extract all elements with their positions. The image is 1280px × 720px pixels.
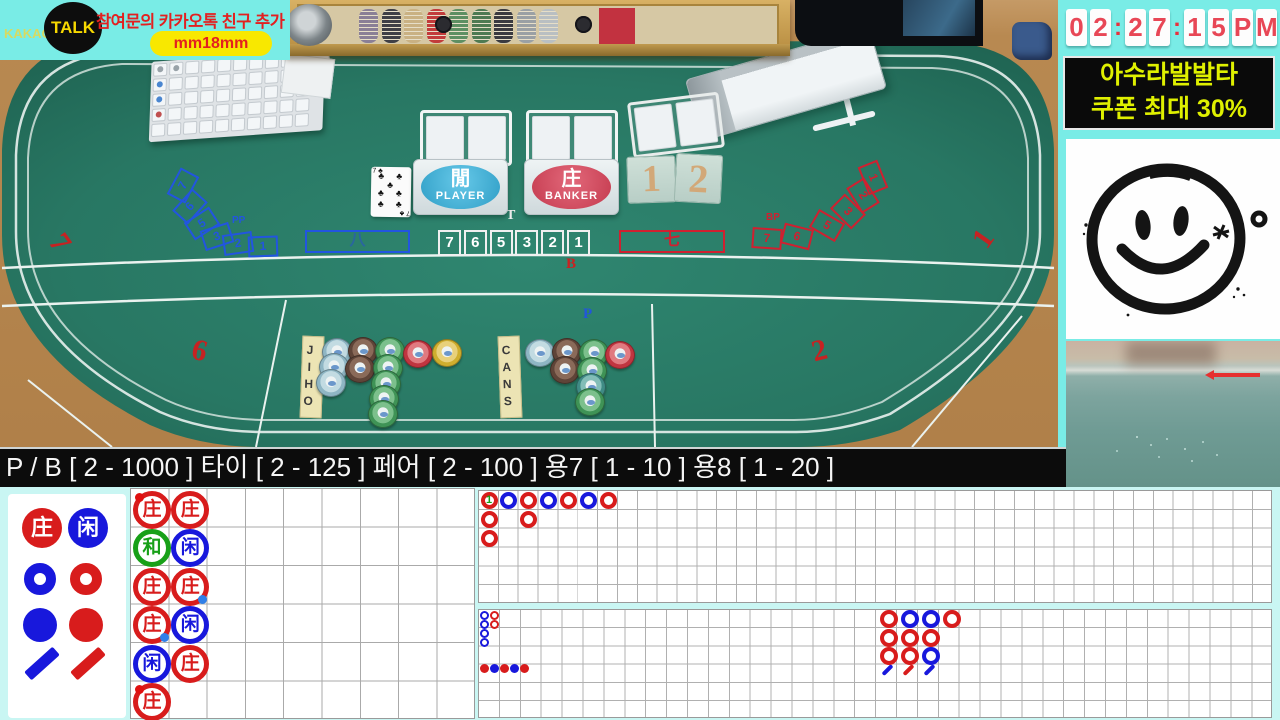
video-thumb-blur [1126,341,1216,365]
big-road-ring [560,492,577,509]
three-road-ring [943,610,961,628]
keyboard-key [200,74,214,88]
big-road-ring [540,492,557,509]
keyboard-key [169,77,183,91]
chip-logo [380,412,388,417]
key-logo [157,81,163,87]
clock-digit: 2 [1090,9,1111,46]
smiley-left-eye [1134,209,1152,240]
bead-char: 庄 [181,499,200,520]
big-eye-ring [480,629,489,638]
keyboard-key [167,107,181,121]
keyboard-key [264,85,278,99]
smiley-panel [1066,139,1280,339]
small-road-dot [510,664,519,673]
bead-road-cell: 闲 [171,606,209,644]
big-road-ring [520,511,537,528]
region-label: P [583,306,592,323]
smiley-sparkle [1213,225,1229,239]
keyboard-key [217,58,231,72]
card-slot [468,116,506,160]
keyboard-key [184,91,198,105]
keyboard-key [279,99,293,113]
keyboard-key [201,59,215,73]
clock-digit: 0 [1066,9,1087,46]
banker-label: BANKER [532,190,611,202]
player-card-holder [420,110,512,166]
banker-arc-label: BP [766,212,780,223]
metal-ashtray [286,4,332,46]
keyboard-key [199,105,213,119]
three-road-ring [922,647,940,665]
smiley-right-eye [1172,205,1191,237]
big-eye-ring [480,620,489,629]
keyboard-key [215,119,229,133]
three-road-ring [880,629,898,647]
three-road-ring [880,610,898,628]
three-road-ring [880,647,898,665]
bead-dot-red [135,493,144,502]
case-chip-stack [382,9,401,43]
key-logo [173,65,179,71]
keyboard-key [168,92,182,106]
big-road-panel: 1 [478,490,1272,603]
chip-case-lip [285,44,790,56]
bead-char: 庄 [142,691,161,712]
clock-digit: 7 [1149,9,1170,46]
card-slot [426,116,464,160]
bead-road-cell: 庄 [133,683,171,720]
card-slot [634,103,677,151]
bead-char: 庄 [181,653,200,674]
promo-box: 아수라발발타 쿠폰 최대 30% [1063,56,1275,130]
player-label: PLAYER [421,190,500,202]
poker-chip [550,356,580,384]
keyboard-key [248,71,262,85]
spare-card-holder [627,92,725,159]
bead-road-cell: 庄 [133,606,171,644]
clock-digit: 1 [1184,9,1205,46]
case-chip-stack [539,9,558,43]
chip-logo [444,351,452,356]
chip-case [285,0,790,56]
player-bet-box: 八 [305,230,410,253]
bead-char: 庄 [142,614,161,635]
legend-slash-blue [24,647,60,681]
big-road-ring [600,492,617,509]
bead-dot-blue [160,633,169,642]
keyboard-key [185,61,199,75]
keyboard-key [264,70,278,84]
poker-chip [432,339,462,367]
poker-chip [605,341,635,369]
clock-digit: 5 [1208,9,1229,46]
legend-banker: 庄 [22,508,62,548]
keyboard-key [183,106,197,120]
bead-dot-red [135,685,144,694]
case-chip-stack [404,9,423,43]
chip-logo [562,368,570,373]
keyboard-key [152,93,166,107]
big-road-ring [481,530,498,547]
card-slot [574,116,612,160]
club-pip: ♣ [378,199,384,209]
legend-slash-red [70,647,106,681]
number-tile-2: 2 [674,153,724,204]
player-marker-oval: 閒 PLAYER [421,165,500,209]
talk-wordmark: TALK [44,18,102,38]
club-pip: ♣ [378,188,384,198]
tie-number-box: 7 [438,230,461,256]
bead-road-cell: 闲 [133,645,171,683]
club-pip: ♣ [387,180,393,190]
bead-road-cell: 庄 [171,568,209,606]
legend-ring-blue [24,563,56,595]
cockroach-road-slash [881,664,893,676]
tablet-screen [903,0,975,36]
small-road-dot [490,664,499,673]
player-arc-box: 1 [248,235,279,257]
bead-char: 庄 [142,499,161,520]
club-pip: ♣ [396,188,402,198]
big-road-ring [520,492,537,509]
big-eye-ring [480,638,489,647]
sidebar: 02:27:15PM 아수라발발타 쿠폰 최대 30% [1058,0,1280,487]
keyboard-key [231,102,245,116]
keyboard-key [200,90,214,104]
legend-banker-char: 庄 [22,508,62,548]
small-road-dot [500,664,509,673]
keyboard-key [183,121,197,135]
keyboard-key [151,123,165,137]
keyboard-key [169,62,183,76]
keyboard-key [263,100,277,114]
clock-digit: P [1232,9,1253,46]
key-logo [156,111,162,117]
table-video-area: 閒 PLAYER 庄 BANKER 1 2 7 ♣7 ♣♣♣♣♣♣♣♣ T765… [0,0,1058,447]
card-deck [599,8,635,44]
table-sparkles [1136,436,1138,438]
case-chip-stack [472,9,491,43]
bead-road-cell: 庄 [133,568,171,606]
big-road-ring [481,511,498,528]
three-road-ring [901,629,919,647]
case-chip-stack [494,9,513,43]
legend-dot-blue [23,608,57,642]
clock-colon: : [1114,9,1122,46]
case-chip-stack [517,9,536,43]
clock-colon: : [1173,9,1181,46]
poker-chip [316,369,346,397]
smiley-face-outline [1085,162,1247,317]
player-marker: 閒 PLAYER [413,159,508,215]
keyboard-key [295,113,309,127]
banker-hanja: 庄 [532,168,611,190]
name-tag-cans: CANS [498,336,523,419]
poker-chip [368,400,398,428]
banker-marker: 庄 BANKER [524,159,619,215]
keyboard-key [295,98,309,112]
region-label: B [566,256,576,273]
tie-number-box: 5 [490,230,513,256]
playing-card-7-clubs: 7 ♣7 ♣♣♣♣♣♣♣♣ [371,167,412,218]
bead-dot-blue [198,595,207,604]
case-lock [575,16,592,33]
number-tile-1: 1 [626,155,677,204]
banker-arc-box: 7 [751,227,782,250]
contact-notice: 참여문의 카카오톡 친구 추가 [96,8,284,32]
card-slot [675,98,718,146]
banker-marker-oval: 庄 BANKER [532,165,611,209]
kakao-banner: KAKAO TALK 참여문의 카카오톡 친구 추가 mm18mm [0,0,290,60]
promo-line-2: 쿠폰 최대 30% [1065,92,1273,126]
keyboard-key [184,76,198,90]
kakaotalk-logo: TALK [44,2,102,54]
chip-logo [564,350,572,355]
legend-ring-red [70,563,102,595]
bead-road-cell: 庄 [133,491,171,529]
keyboard-key [152,108,166,122]
smiley-small-circle [1253,213,1265,225]
keyboard-key [167,122,181,136]
bead-char: 闲 [181,537,200,558]
bead-road-cell: 庄 [171,491,209,529]
limits-banner: P / B [ 2 - 1000 ] 타이 [ 2 - 125 ] 페어 [ 2… [0,447,1066,487]
clock-digit: M [1256,9,1277,46]
card-index: 7 ♣ [399,209,410,216]
keyboard-key [216,73,230,87]
big-road-tie-count: 1 [481,492,498,509]
legend-player: 闲 [68,508,108,548]
banker-card-holder [526,110,618,166]
bead-char: 闲 [181,614,200,635]
laser-pointer-arrow [1214,373,1260,377]
kakao-id-badge: mm18mm [150,31,272,56]
bead-road-cell: 和 [133,529,171,567]
three-road-ring [901,610,919,628]
bead-road-cell: 闲 [171,529,209,567]
blue-pouch [1012,22,1052,60]
promo-line-1: 아수라발발타 [1065,58,1273,92]
keyboard-key [279,114,293,128]
bead-char: 和 [142,537,161,558]
poker-chip [575,388,605,416]
chip-logo [415,352,423,357]
card-slot [532,116,570,160]
video-thumbnail [1066,341,1280,487]
big-road-ring [580,492,597,509]
smiley-drawing [1066,139,1280,339]
cockroach-road-slash [902,664,914,676]
three-road-ring [922,629,940,647]
banker-bet-box: 七 [619,230,725,253]
legend-panel: 庄闲 [8,494,126,718]
big-eye-ring [490,611,499,620]
keyboard-key [248,86,262,100]
scoreboard: 庄闲 庄和庄庄闲庄庄闲庄闲庄 1 [0,487,1280,720]
clock: 02:27:15PM [1066,9,1277,46]
key-logo [157,66,163,72]
bead-road-cell: 庄 [171,645,209,683]
limits-text: P / B [ 2 - 1000 ] 타이 [ 2 - 125 ] 페어 [ 2… [6,452,834,482]
small-road-dot [480,664,489,673]
keyboard-key [216,88,230,102]
chip-logo [357,367,365,372]
cockroach-road-slash [923,664,935,676]
legend-player-char: 闲 [68,508,108,548]
keyboard-key [263,115,277,129]
keyboard-key [232,72,246,86]
legend-dot-red [69,608,103,642]
keyboard-key [247,116,261,130]
keyboard-key [215,104,229,118]
keyboard-key [199,120,213,134]
small-road-dot [520,664,529,673]
chip-logo [591,351,599,356]
stream-frame: 閒 PLAYER 庄 BANKER 1 2 7 ♣7 ♣♣♣♣♣♣♣♣ T765… [0,0,1280,720]
tie-number-box: 3 [515,230,538,256]
club-pip: ♣ [396,171,402,181]
keyboard-key [247,101,261,115]
chip-logo [617,353,625,358]
clock-digit: 2 [1125,9,1146,46]
derived-roads-panel [478,609,1272,718]
bead-char: 闲 [142,653,161,674]
chip-logo [360,349,368,354]
bead-road-panel: 庄和庄庄闲庄庄闲庄闲庄 [130,488,475,719]
poker-chip [403,340,433,368]
player-arc-label: PP [232,215,245,226]
keyboard-key [231,117,245,131]
big-road-ring [500,492,517,509]
tie-number-box: 1 [567,230,590,256]
keyboard-key [232,87,246,101]
chip-logo [328,381,336,386]
three-road-ring [901,647,919,665]
player-hanja: 閒 [421,168,500,190]
keyboard-key [153,63,167,77]
poker-chip [345,355,375,383]
three-road-ring [922,610,940,628]
smiley-mouth [1122,245,1204,269]
case-lock [435,16,452,33]
chip-logo [537,351,545,356]
case-chip-stack [359,9,378,43]
chip-logo [587,400,595,405]
big-eye-ring [490,620,499,629]
club-pip: ♣ [396,199,402,209]
bead-char: 庄 [181,576,200,597]
smiley-top-arc [1150,175,1190,179]
big-eye-ring [480,611,489,620]
tie-number-box: 2 [541,230,564,256]
key-logo [156,96,162,102]
poker-chip [525,339,555,367]
bead-char: 庄 [142,576,161,597]
tie-number-box: 6 [464,230,487,256]
club-pip: ♣ [378,171,384,181]
chip-case-glass [297,4,779,48]
tablet [795,0,983,46]
keyboard-key [153,78,167,92]
